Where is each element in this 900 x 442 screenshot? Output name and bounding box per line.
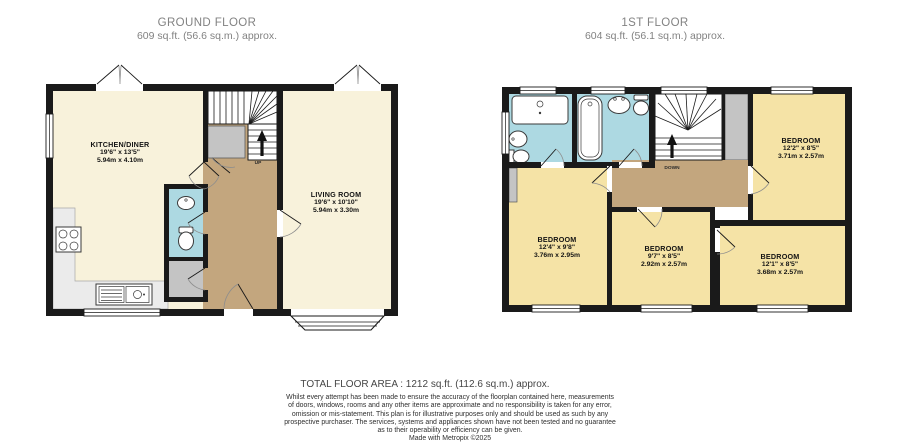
window [757,305,808,312]
window [532,305,580,312]
first-floor-area-text: 604 sq.ft. (56.1 sq.m.) approx. [505,30,805,42]
floorplan-page: GROUND FLOOR 609 sq.ft. (56.6 sq.m.) app… [0,0,900,442]
staircase-down [655,94,722,160]
ground-floor-title: GROUND FLOOR 609 sq.ft. (56.6 sq.m.) app… [57,17,357,42]
bathtub [578,96,602,160]
built-in-cupboard [509,168,517,202]
ground-floor-area-text: 609 sq.ft. (56.6 sq.m.) approx. [57,30,357,42]
bay-window [291,309,384,330]
window [641,305,692,312]
hob [56,227,81,252]
wc-basin [178,197,195,210]
metropix-credit: Made with Metropix ©2025 [150,435,750,442]
disclaimer-line: Whilst every attempt has been made to en… [150,394,750,402]
bathroom-basin [608,97,630,114]
french-doors [334,65,381,91]
disclaimer-line: prospective purchaser. The services, sys… [150,419,750,427]
bedroom-br-label: BEDROOM 12'1" x 8'5" 3.68m x 2.57m [700,253,860,277]
total-floor-area: TOTAL FLOOR AREA : 1212 sq.ft. (112.6 sq… [125,379,725,390]
window [520,87,556,94]
kitchen-sink [96,284,152,305]
up-label: UP [246,161,270,166]
shower-room-toilet [509,150,529,163]
disclaimer-line: omission or mis-statement. This plan is … [150,411,750,419]
window [771,87,813,94]
shower [512,96,568,124]
shower-room-basin [509,131,527,147]
wc-toilet [179,227,194,250]
window [84,309,160,316]
ground-floor-title-text: GROUND FLOOR [57,17,357,30]
first-floor-plan [488,58,868,343]
window [661,87,707,94]
first-floor-title-text: 1ST FLOOR [505,17,805,30]
kitchen-hall-wall [203,91,208,162]
outer-wall-right [845,87,852,312]
bathroom-toilet [634,95,649,115]
disclaimer: Whilst every attempt has been made to en… [150,394,750,442]
window [591,87,625,94]
understairs-cupboard [208,126,245,158]
living-room-label: LIVING ROOM 19'6" x 10'10" 5.94m x 3.30m [256,191,416,215]
down-label: DOWN [652,166,692,171]
kitchen-diner-label: KITCHEN/DINER 19'6" x 13'5" 5.94m x 4.10… [40,141,200,165]
french-doors [96,65,143,91]
bedroom-tr-label: BEDROOM 12'2" x 8'5" 3.71m x 2.57m [721,137,881,161]
window [502,112,509,154]
first-floor-title: 1ST FLOOR 604 sq.ft. (56.1 sq.m.) approx… [505,17,805,42]
hall-cupboard [169,261,203,297]
disclaimer-line: of doors, windows, rooms and any other i… [150,402,750,410]
